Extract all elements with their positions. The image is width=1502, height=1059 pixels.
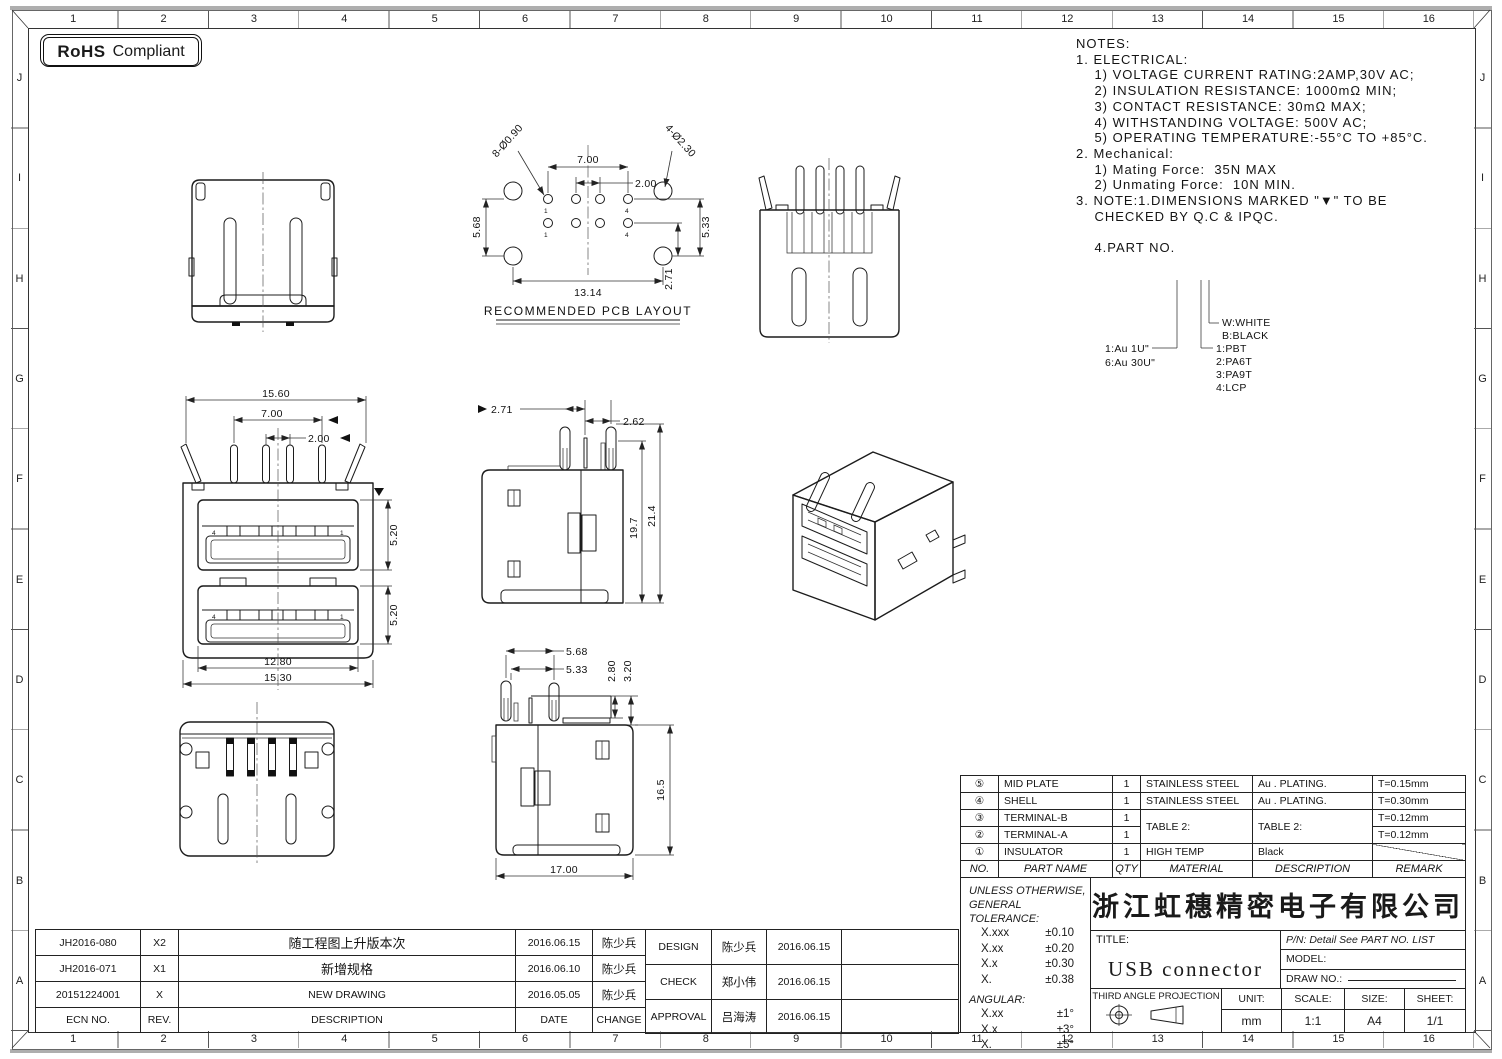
rev-rev: X1: [141, 956, 179, 982]
column-label: 1: [28, 1031, 118, 1048]
projection-cell: THIRD ANGLE PROJECTION: [1091, 989, 1222, 1032]
row-label: B: [11, 830, 28, 930]
note-line: NOTES:: [1076, 36, 1476, 52]
tol-val: ±1°: [1057, 1007, 1074, 1023]
dim-label: 4-Ø2.30: [662, 122, 698, 160]
tol-key: X.xx: [981, 1007, 1003, 1023]
bom-description: TABLE 2:: [1253, 810, 1373, 844]
view-top-shell: [188, 166, 338, 336]
bom-part-name: TERMINAL-A: [999, 827, 1113, 844]
view-side-bottom: 5.68 5.33 2.80 3.20 16.5: [478, 628, 728, 893]
rev-change: 陈少兵: [593, 982, 646, 1008]
pin-number-label: 4: [212, 614, 216, 621]
dim-label: 5.33: [566, 664, 588, 676]
dim-label: 2.80: [606, 660, 618, 682]
sheet-label: SHEET:: [1405, 989, 1465, 1010]
plating-option-1: 1:Au 1U": [1105, 343, 1149, 355]
third-angle-projection-icon: [1101, 1002, 1211, 1028]
draw-no-label: DRAW NO.:: [1286, 973, 1342, 985]
note-line: 1. ELECTRICAL:: [1076, 52, 1476, 68]
title-block: 浙江虹穗精密电子有限公司 TITLE: USB connector P/N: D…: [1090, 877, 1466, 1033]
bom-header-description: DESCRIPTION: [1253, 861, 1373, 878]
row-label: H: [1474, 229, 1491, 329]
note-line: 4.PART NO.: [1076, 240, 1476, 256]
approval-empty: [842, 930, 959, 965]
column-label: 6: [480, 11, 570, 28]
column-label: 5: [390, 1031, 480, 1048]
table-row: ④ SHELL 1 STAINLESS STEEL Au . PLATING. …: [961, 793, 1466, 810]
column-label: 13: [1113, 1031, 1203, 1048]
tol-key: X.xxx: [981, 926, 1009, 942]
column-label: 4: [299, 1031, 389, 1048]
tolerance-heading: UNLESS OTHERWISE,: [961, 884, 1090, 898]
color-option-black: B:BLACK: [1222, 330, 1268, 342]
dim-label: 17.00: [550, 864, 578, 876]
dim-label: 2.62: [623, 416, 645, 428]
rohs-badge: RoHS Compliant: [40, 34, 202, 67]
dim-label: 3.20: [622, 660, 634, 682]
note-line: 1) VOLTAGE CURRENT RATING:2AMP,30V AC;: [1076, 67, 1476, 83]
note-line: 2) INSULATION RESISTANCE: 1000mΩ MIN;: [1076, 83, 1476, 99]
size-cell: SIZE: A4: [1345, 989, 1405, 1032]
frame-rows-right: JIHGFEDCBA: [1474, 28, 1491, 1031]
row-label: E: [1474, 529, 1491, 629]
rev-rev: X2: [141, 930, 179, 956]
rev-ecn: JH2016-071: [36, 956, 141, 982]
view-pcb-layout: 1 1 4 4 7.00 2.00 8-Ø0.90 4-Ø2.30 5.68 5…: [438, 113, 738, 333]
approval-date: 2016.06.15: [767, 1000, 842, 1034]
bom-remark-none: [1373, 844, 1466, 861]
bom-remark: T=0.30mm: [1373, 793, 1466, 810]
row-label: G: [11, 329, 28, 429]
column-label: 15: [1293, 1031, 1383, 1048]
bom-qty: 1: [1113, 810, 1141, 827]
column-label: 14: [1203, 11, 1293, 28]
bom-part-name: TERMINAL-B: [999, 810, 1113, 827]
column-label: 2: [118, 11, 208, 28]
table-row: APPROVAL 吕海涛 2016.06.15: [646, 1000, 959, 1034]
sheet-cell: SHEET: 1/1: [1405, 989, 1465, 1032]
bom-no: ⑤: [961, 776, 999, 793]
column-label: 16: [1384, 11, 1474, 28]
frame-columns-top: 12345678910111213141516: [28, 11, 1474, 28]
tolerance-heading: GENERAL TOLERANCE:: [961, 898, 1090, 926]
approval-role: APPROVAL: [646, 1000, 712, 1034]
dim-label: 5.20: [388, 524, 400, 546]
scale-value: 1:1: [1282, 1010, 1344, 1032]
row-label: D: [11, 630, 28, 730]
bom-no: ②: [961, 827, 999, 844]
part-number-note: P/N: Detail See PART NO. LIST: [1281, 931, 1465, 950]
dim-label: 13.14: [574, 287, 602, 299]
column-label: 1: [28, 11, 118, 28]
table-row: ③ TERMINAL-B 1 TABLE 2: TABLE 2: T=0.12m…: [961, 810, 1466, 827]
tol-key: X.: [981, 973, 992, 989]
row-label: C: [1474, 730, 1491, 830]
pin-number-label: 1: [340, 530, 344, 537]
row-label: F: [11, 429, 28, 529]
dim-label: 19.7: [628, 517, 640, 539]
note-line: CHECKED BY Q.C & IPQC.: [1076, 209, 1476, 225]
unit-cell: UNIT: mm: [1222, 989, 1282, 1032]
dim-label: 7.00: [261, 408, 283, 420]
tol-val: ±0.30: [1045, 957, 1074, 973]
draw-no-blank-line: [1348, 973, 1456, 981]
rev-header-change: CHANGE: [593, 1008, 646, 1033]
tolerance-angular-heading: ANGULAR:: [961, 993, 1090, 1007]
row-label: I: [1474, 128, 1491, 228]
pin-number-label: 4: [625, 232, 629, 239]
rev-ecn: JH2016-080: [36, 930, 141, 956]
bom-qty: 1: [1113, 776, 1141, 793]
check-mark-triangle: [328, 416, 338, 424]
bom-material: STAINLESS STEEL: [1141, 793, 1253, 810]
approval-table: DESIGN 陈少兵 2016.06.15 CHECK 郑小伟 2016.06.…: [645, 929, 959, 1034]
tolerance-block: UNLESS OTHERWISE, GENERAL TOLERANCE: X.x…: [960, 877, 1091, 1033]
pin-number-label: 1: [544, 232, 548, 239]
check-mark-triangle: [340, 434, 350, 442]
unit-value: mm: [1222, 1010, 1281, 1032]
tol-key: X.xx: [981, 942, 1003, 958]
view-isometric: [778, 440, 968, 630]
table-row: CHECK 郑小伟 2016.06.15: [646, 965, 959, 1000]
material-option-pa6t: 2:PA6T: [1216, 356, 1252, 368]
column-label: 3: [209, 11, 299, 28]
column-label: 16: [1384, 1031, 1474, 1048]
color-option-white: W:WHITE: [1222, 317, 1271, 329]
approval-name: 陈少兵: [712, 930, 767, 965]
approval-role: DESIGN: [646, 930, 712, 965]
rev-ecn: 20151224001: [36, 982, 141, 1008]
bom-remark: T=0.12mm: [1373, 810, 1466, 827]
tol-val: ±5°: [1057, 1038, 1074, 1054]
dim-label: 7.00: [577, 154, 599, 166]
plating-option-6: 6:Au 30U": [1105, 357, 1155, 369]
bom-no: ③: [961, 810, 999, 827]
tol-val: ±0.20: [1045, 942, 1074, 958]
note-line: 4) WITHSTANDING VOLTAGE: 500V AC;: [1076, 115, 1476, 131]
view-bottom: [172, 694, 342, 869]
tol-key: X.: [981, 1038, 992, 1054]
rev-description: 随工程图上升版本次: [179, 930, 516, 956]
view-back-pins: [752, 150, 907, 345]
approval-name: 郑小伟: [712, 965, 767, 1000]
column-label: 2: [118, 1031, 208, 1048]
column-label: 5: [390, 11, 480, 28]
bom-header-qty: QTY: [1113, 861, 1141, 878]
row-label: B: [1474, 830, 1491, 930]
dim-label: 2.00: [635, 178, 657, 190]
approval-date: 2016.06.15: [767, 965, 842, 1000]
view-front-dual-usb: 15.60 7.00 2.00 4 1: [168, 388, 403, 693]
bom-material: HIGH TEMP: [1141, 844, 1253, 861]
bom-part-name: INSULATOR: [999, 844, 1113, 861]
rev-date: 2016.06.10: [516, 956, 593, 982]
pcb-layout-title: RECOMMENDED PCB LAYOUT: [484, 304, 692, 318]
bom-description: Au . PLATING.: [1253, 776, 1373, 793]
column-label: 14: [1203, 1031, 1293, 1048]
column-label: 7: [570, 11, 660, 28]
rev-change: 陈少兵: [593, 956, 646, 982]
column-label: 4: [299, 11, 389, 28]
rev-rev: X: [141, 982, 179, 1008]
check-mark-triangle: [478, 405, 487, 413]
bom-remark: T=0.12mm: [1373, 827, 1466, 844]
approval-name: 吕海涛: [712, 1000, 767, 1034]
bom-qty: 1: [1113, 844, 1141, 861]
bom-part-name: SHELL: [999, 793, 1113, 810]
column-label: 8: [661, 11, 751, 28]
column-label: 10: [841, 11, 931, 28]
column-label: 11: [932, 11, 1022, 28]
bom-header-name: PART NAME: [999, 861, 1113, 878]
drawing-title: USB connector: [1091, 957, 1280, 982]
dim-label: 15.60: [262, 388, 290, 400]
table-header-row: NO. PART NAME QTY MATERIAL DESCRIPTION R…: [961, 861, 1466, 878]
bom-header-no: NO.: [961, 861, 999, 878]
note-line: 3) CONTACT RESISTANCE: 30mΩ MAX;: [1076, 99, 1476, 115]
row-label: I: [11, 128, 28, 228]
note-line: 2. Mechanical:: [1076, 146, 1476, 162]
dim-label: 16.5: [655, 779, 667, 801]
tol-val: ±0.38: [1045, 973, 1074, 989]
row-label: J: [11, 28, 28, 128]
row-label: H: [11, 229, 28, 329]
part-number-tree: 1:Au 1U" 6:Au 30U" W:WHITE B:BLACK 1:PBT…: [1095, 275, 1295, 405]
sheet-value: 1/1: [1405, 1010, 1465, 1032]
bom-table: ⑤ MID PLATE 1 STAINLESS STEEL Au . PLATI…: [960, 775, 1466, 878]
scale-label: SCALE:: [1282, 989, 1344, 1010]
row-label: A: [1474, 931, 1491, 1031]
table-row: DESIGN 陈少兵 2016.06.15: [646, 930, 959, 965]
row-label: E: [11, 529, 28, 629]
dim-label: 2.00: [308, 433, 330, 445]
material-option-pa9t: 3:PA9T: [1216, 369, 1252, 381]
rev-change: 陈少兵: [593, 930, 646, 956]
bom-description: Au . PLATING.: [1253, 793, 1373, 810]
dim-label: 5.68: [566, 646, 588, 658]
table-row: ① INSULATOR 1 HIGH TEMP Black: [961, 844, 1466, 861]
row-label: A: [11, 931, 28, 1031]
tol-val: ±3°: [1057, 1023, 1074, 1039]
size-value: A4: [1345, 1010, 1404, 1032]
dim-label: 5.68: [471, 216, 483, 238]
bom-material: STAINLESS STEEL: [1141, 776, 1253, 793]
projection-label: THIRD ANGLE PROJECTION: [1092, 989, 1219, 1002]
revision-table: JH2016-080 X2 随工程图上升版本次 2016.06.15 陈少兵 J…: [35, 929, 646, 1033]
rev-header-rev: REV.: [141, 1008, 179, 1033]
note-line: 1) Mating Force: 35N MAX: [1076, 162, 1476, 178]
bom-no: ④: [961, 793, 999, 810]
approval-role: CHECK: [646, 965, 712, 1000]
row-label: J: [1474, 28, 1491, 128]
row-label: D: [1474, 630, 1491, 730]
column-label: 12: [1022, 11, 1112, 28]
table-header-row: ECN NO. REV. DESCRIPTION DATE CHANGE: [36, 1008, 646, 1033]
bom-description: Black: [1253, 844, 1373, 861]
table-row: 20151224001 X NEW DRAWING 2016.05.05 陈少兵: [36, 982, 646, 1008]
size-label: SIZE:: [1345, 989, 1404, 1010]
bom-header-remark: REMARK: [1373, 861, 1466, 878]
rev-date: 2016.05.05: [516, 982, 593, 1008]
dim-label: 5.20: [388, 604, 400, 626]
tol-key: X.x: [981, 1023, 998, 1039]
company-name: 浙江虹穗精密电子有限公司: [1091, 878, 1465, 931]
approval-empty: [842, 965, 959, 1000]
note-line: [1076, 224, 1476, 240]
notes-block: NOTES:1. ELECTRICAL: 1) VOLTAGE CURRENT …: [1076, 36, 1476, 256]
note-line: 5) OPERATING TEMPERATURE:-55°C TO +85°C.: [1076, 130, 1476, 146]
material-option-lcp: 4:LCP: [1216, 382, 1247, 394]
engineering-drawing-sheet: 12345678910111213141516 1234567891011121…: [0, 0, 1502, 1059]
note-line: 3. NOTE:1.DIMENSIONS MARKED "▼" TO BE: [1076, 193, 1476, 209]
column-label: 13: [1113, 11, 1203, 28]
iso-port-b: [802, 536, 867, 586]
pin-number-label: 1: [544, 208, 548, 215]
table-row: JH2016-071 X1 新增规格 2016.06.10 陈少兵: [36, 956, 646, 982]
bom-header-material: MATERIAL: [1141, 861, 1253, 878]
pin-number-label: 4: [625, 208, 629, 215]
column-label: 3: [209, 1031, 299, 1048]
draw-no-row: DRAW NO.:: [1281, 970, 1465, 988]
rohs-text: Compliant: [113, 43, 185, 61]
model-label: MODEL:: [1281, 950, 1465, 969]
rev-description: 新增规格: [179, 956, 516, 982]
unit-label: UNIT:: [1222, 989, 1281, 1010]
pin-number-label: 4: [212, 530, 216, 537]
rev-header-date: DATE: [516, 1008, 593, 1033]
bom-part-name: MID PLATE: [999, 776, 1113, 793]
bom-no: ①: [961, 844, 999, 861]
pin-number-label: 1: [340, 614, 344, 621]
bom-material: TABLE 2:: [1141, 810, 1253, 844]
bom-qty: 1: [1113, 793, 1141, 810]
row-label: G: [1474, 329, 1491, 429]
dim-label: 5.33: [700, 216, 712, 238]
dim-label: 21.4: [646, 505, 658, 527]
scale-cell: SCALE: 1:1: [1282, 989, 1345, 1032]
table-row: JH2016-080 X2 随工程图上升版本次 2016.06.15 陈少兵: [36, 930, 646, 956]
view-side: 2.71 2.62 19.7 21.4: [458, 388, 670, 643]
note-line: 2) Unmating Force: 10N MIN.: [1076, 177, 1476, 193]
tol-val: ±0.10: [1045, 926, 1074, 942]
rev-header-description: DESCRIPTION: [179, 1008, 516, 1033]
row-label: F: [1474, 429, 1491, 529]
dim-label: 2.71: [663, 268, 675, 290]
bom-qty: 1: [1113, 827, 1141, 844]
rev-description: NEW DRAWING: [179, 982, 516, 1008]
rohs-bold: RoHS: [57, 42, 105, 62]
row-label: C: [11, 730, 28, 830]
title-label: TITLE:: [1096, 934, 1129, 946]
frame-rows-left: JIHGFEDCBA: [11, 28, 28, 1031]
table-row: ⑤ MID PLATE 1 STAINLESS STEEL Au . PLATI…: [961, 776, 1466, 793]
check-mark-triangle: [374, 488, 384, 496]
column-label: 6: [480, 1031, 570, 1048]
approval-date: 2016.06.15: [767, 930, 842, 965]
dim-label: 2.71: [491, 404, 513, 416]
material-option-pbt: 1:PBT: [1216, 343, 1247, 355]
bom-remark: T=0.15mm: [1373, 776, 1466, 793]
tol-key: X.x: [981, 957, 998, 973]
rev-date: 2016.06.15: [516, 930, 593, 956]
rev-header-ecn: ECN NO.: [36, 1008, 141, 1033]
column-label: 15: [1293, 11, 1383, 28]
column-label: 9: [751, 11, 841, 28]
approval-empty: [842, 1000, 959, 1034]
